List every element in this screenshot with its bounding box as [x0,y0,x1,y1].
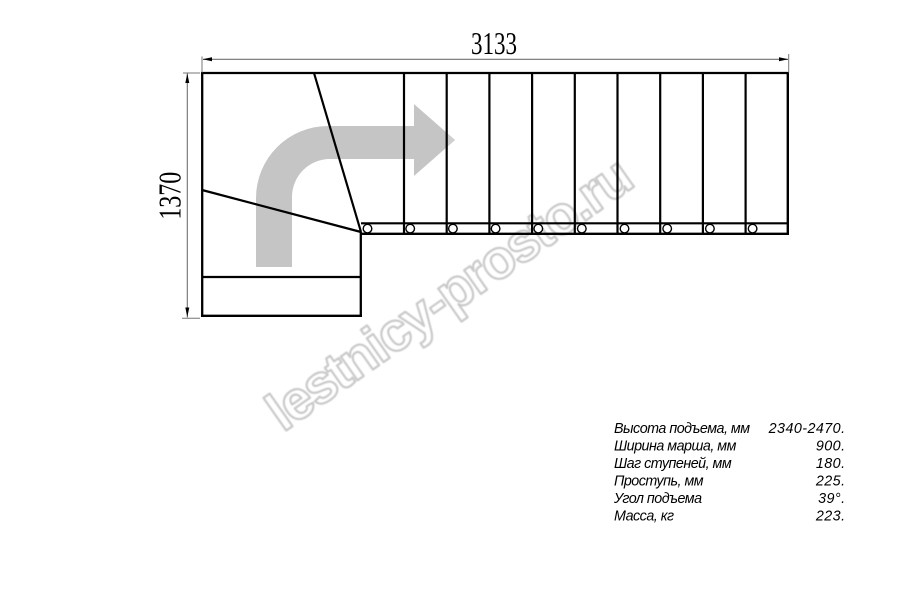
svg-text:Ширина марша, мм: Ширина марша, мм [614,439,737,455]
svg-text:Высота подъема, мм: Высота подъема, мм [614,421,750,437]
svg-text:225.: 225. [815,474,846,490]
svg-text:39°.: 39°. [818,491,845,507]
svg-text:900.: 900. [816,439,846,455]
svg-text:223.: 223. [815,509,846,525]
svg-text:Масса, кг: Масса, кг [614,509,674,525]
svg-text:2340-2470.: 2340-2470. [768,421,846,437]
svg-text:lestnicy-prosto.ru: lestnicy-prosto.ru [254,145,642,443]
svg-text:Шаг ступеней, мм: Шаг ступеней, мм [614,456,732,472]
svg-text:Проступь, мм: Проступь, мм [614,474,704,490]
svg-text:3133: 3133 [471,26,517,62]
svg-text:1370: 1370 [153,172,188,220]
svg-text:180.: 180. [816,456,846,472]
svg-text:Угол подъема: Угол подъема [613,491,702,507]
